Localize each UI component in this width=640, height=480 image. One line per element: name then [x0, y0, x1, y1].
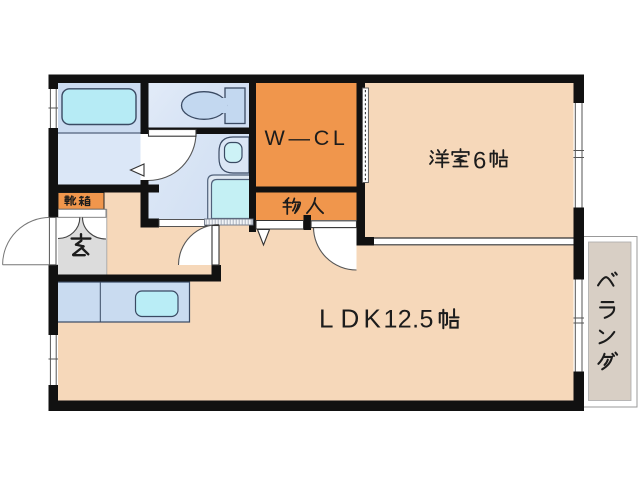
svg-text:L: L: [319, 304, 333, 334]
svg-text:12.5: 12.5: [384, 306, 434, 334]
svg-text:K: K: [364, 304, 382, 334]
svg-text:6: 6: [473, 148, 486, 175]
svg-text:D: D: [341, 304, 360, 334]
svg-text:W―CL: W―CL: [265, 126, 349, 150]
